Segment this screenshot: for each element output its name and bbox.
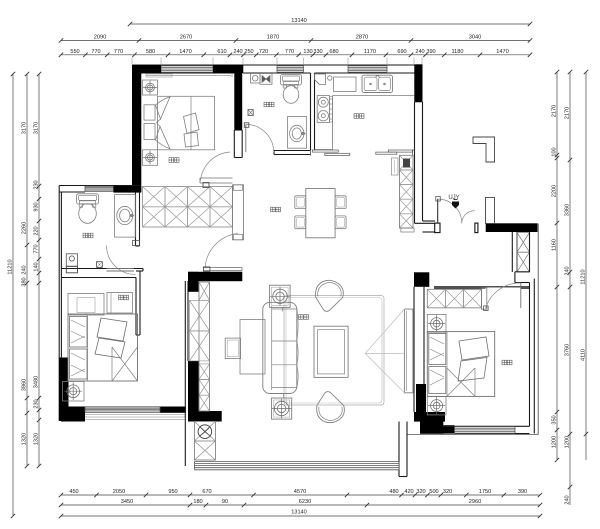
svg-text:11210: 11210 bbox=[8, 259, 14, 274]
svg-text:500: 500 bbox=[429, 489, 438, 495]
svg-text:240: 240 bbox=[565, 266, 571, 275]
svg-text:230: 230 bbox=[34, 180, 40, 189]
svg-text:130: 130 bbox=[303, 49, 312, 55]
svg-text:13140: 13140 bbox=[291, 18, 307, 24]
svg-text:580: 580 bbox=[146, 49, 155, 55]
svg-text:3760: 3760 bbox=[565, 344, 571, 356]
svg-text:3170: 3170 bbox=[22, 122, 28, 134]
svg-text:2170: 2170 bbox=[565, 107, 571, 119]
svg-text:250: 250 bbox=[244, 49, 253, 55]
svg-text:320: 320 bbox=[443, 489, 452, 495]
svg-text:1750: 1750 bbox=[479, 489, 491, 495]
svg-text:550: 550 bbox=[70, 49, 79, 55]
svg-text:2170: 2170 bbox=[552, 105, 558, 117]
svg-text:390: 390 bbox=[518, 489, 527, 495]
svg-text:13140: 13140 bbox=[291, 510, 307, 516]
svg-text:90: 90 bbox=[222, 499, 228, 505]
svg-text:2200: 2200 bbox=[552, 185, 558, 197]
svg-text:1320: 1320 bbox=[22, 433, 28, 445]
svg-text:390: 390 bbox=[426, 49, 435, 55]
svg-text:670: 670 bbox=[202, 489, 211, 495]
svg-text:2960: 2960 bbox=[469, 499, 481, 505]
svg-text:2260: 2260 bbox=[22, 222, 28, 234]
svg-text:450: 450 bbox=[69, 489, 78, 495]
svg-text:1470: 1470 bbox=[179, 49, 191, 55]
svg-text:770: 770 bbox=[34, 244, 40, 253]
svg-text:930: 930 bbox=[34, 202, 40, 211]
svg-text:320: 320 bbox=[416, 489, 425, 495]
svg-text:4570: 4570 bbox=[294, 489, 306, 495]
svg-text:380: 380 bbox=[22, 277, 28, 286]
svg-text:720: 720 bbox=[259, 49, 268, 55]
svg-text:240: 240 bbox=[22, 265, 28, 274]
svg-text:140: 140 bbox=[34, 262, 40, 271]
svg-text:1200: 1200 bbox=[552, 436, 558, 448]
svg-text:350: 350 bbox=[552, 415, 558, 424]
svg-text:690: 690 bbox=[397, 49, 406, 55]
svg-text:240: 240 bbox=[415, 49, 424, 55]
svg-text:3170: 3170 bbox=[34, 122, 40, 134]
svg-text:680: 680 bbox=[329, 49, 338, 55]
svg-text:1870: 1870 bbox=[267, 35, 279, 41]
svg-text:1160: 1160 bbox=[552, 239, 558, 251]
svg-text:950: 950 bbox=[168, 489, 177, 495]
svg-text:240: 240 bbox=[233, 49, 242, 55]
svg-text:4110: 4110 bbox=[581, 349, 587, 361]
svg-text:11210: 11210 bbox=[581, 269, 587, 284]
svg-text:240: 240 bbox=[565, 495, 571, 504]
svg-text:610: 610 bbox=[217, 49, 226, 55]
svg-text:3040: 3040 bbox=[469, 35, 481, 41]
svg-text:420: 420 bbox=[404, 489, 413, 495]
svg-text:1200: 1200 bbox=[565, 436, 571, 448]
svg-text:3360: 3360 bbox=[565, 204, 571, 216]
svg-text:330: 330 bbox=[313, 49, 322, 55]
svg-text:UJY: UJY bbox=[448, 195, 459, 201]
svg-text:3480: 3480 bbox=[34, 376, 40, 388]
svg-text:230: 230 bbox=[34, 399, 40, 408]
svg-text:770: 770 bbox=[285, 49, 294, 55]
svg-text:220: 220 bbox=[34, 226, 40, 235]
svg-text:2050: 2050 bbox=[113, 489, 125, 495]
svg-text:480: 480 bbox=[389, 489, 398, 495]
svg-text:1180: 1180 bbox=[451, 49, 463, 55]
svg-text:770: 770 bbox=[91, 49, 100, 55]
svg-text:770: 770 bbox=[114, 49, 123, 55]
svg-text:180: 180 bbox=[193, 499, 202, 505]
svg-text:1470: 1470 bbox=[496, 49, 508, 55]
svg-text:3450: 3450 bbox=[121, 499, 133, 505]
svg-text:2670: 2670 bbox=[180, 35, 192, 41]
svg-text:100: 100 bbox=[552, 147, 558, 156]
svg-text:1320: 1320 bbox=[34, 433, 40, 445]
svg-text:1170: 1170 bbox=[364, 49, 376, 55]
svg-text:3860: 3860 bbox=[22, 379, 28, 391]
svg-text:2090: 2090 bbox=[94, 35, 106, 41]
svg-text:2870: 2870 bbox=[356, 35, 368, 41]
svg-text:6230: 6230 bbox=[299, 499, 311, 505]
